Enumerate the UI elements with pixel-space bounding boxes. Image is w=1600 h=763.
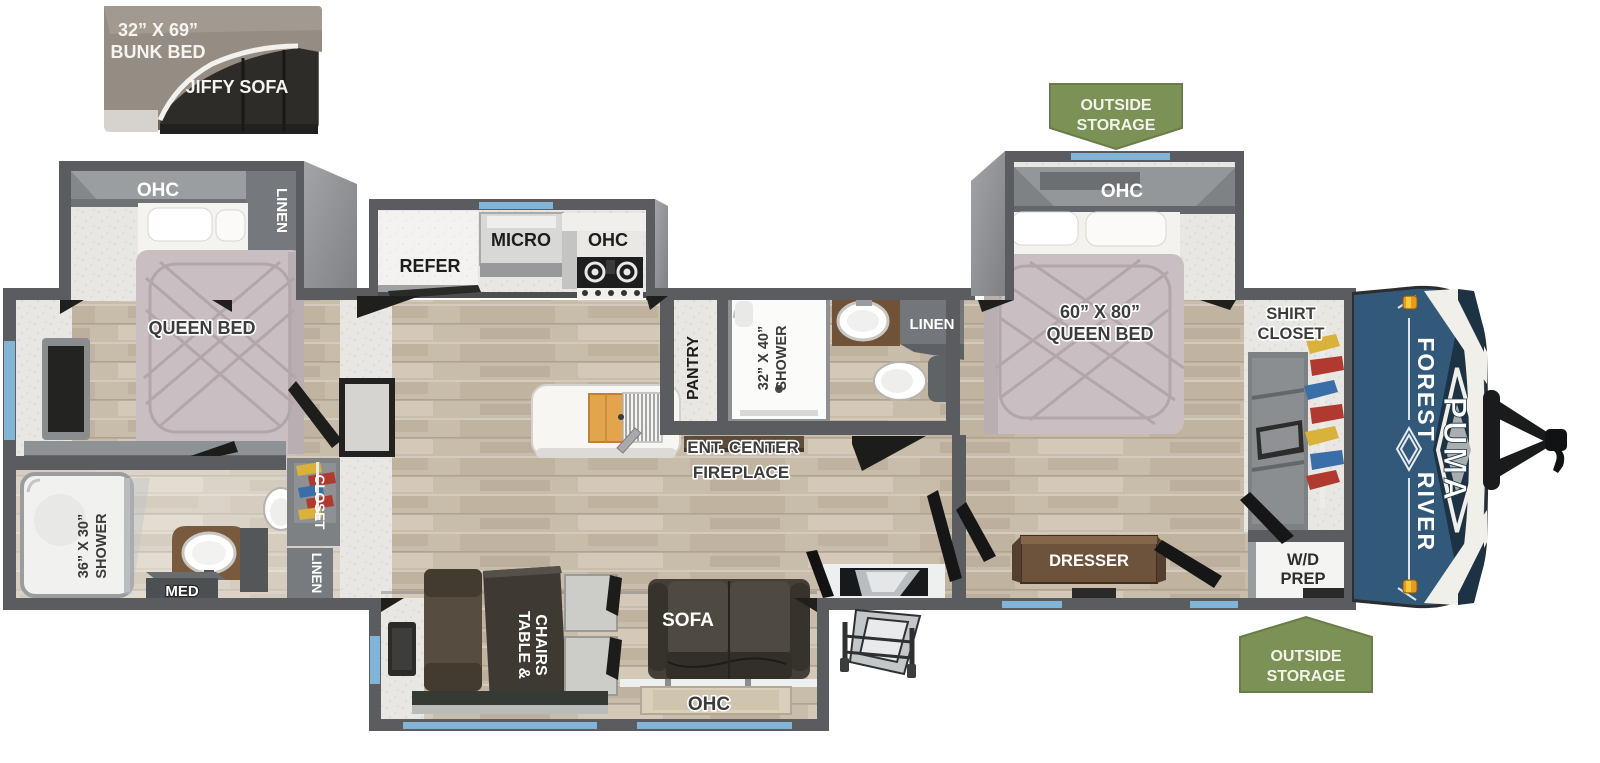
svg-text:OHC: OHC — [1101, 181, 1144, 202]
svg-text:CLOSET: CLOSET — [1258, 325, 1325, 343]
svg-text:REFER: REFER — [399, 256, 460, 276]
svg-text:LINEN: LINEN — [910, 316, 955, 333]
svg-text:CLOSET: CLOSET — [312, 475, 327, 531]
svg-text:32” X 40”: 32” X 40” — [756, 326, 772, 391]
svg-text:ENT. CENTER: ENT. CENTER — [687, 438, 798, 457]
svg-text:60” X 80”: 60” X 80” — [1060, 302, 1140, 322]
svg-text:W/D: W/D — [1287, 551, 1319, 569]
svg-text:SHOWER: SHOWER — [94, 513, 110, 579]
svg-text:MICRO: MICRO — [491, 230, 551, 250]
svg-text:SOFA: SOFA — [662, 610, 714, 631]
svg-text:STORAGE: STORAGE — [1267, 668, 1346, 685]
svg-text:SHIRT: SHIRT — [1266, 305, 1316, 323]
svg-text:TABLE &: TABLE & — [515, 611, 532, 680]
svg-text:PREP: PREP — [1281, 570, 1326, 588]
svg-text:LINEN: LINEN — [273, 188, 290, 233]
svg-text:36” X 30”: 36” X 30” — [76, 514, 92, 579]
svg-text:FIREPLACE: FIREPLACE — [693, 463, 789, 482]
svg-text:SHOWER: SHOWER — [774, 325, 790, 391]
svg-text:OUTSIDE: OUTSIDE — [1270, 648, 1341, 665]
svg-text:FOREST: FOREST — [1413, 337, 1439, 442]
svg-text:OHC: OHC — [588, 230, 628, 250]
svg-text:MED: MED — [165, 583, 199, 600]
svg-text:32” X 69”: 32” X 69” — [118, 20, 198, 40]
svg-text:LINEN: LINEN — [309, 553, 324, 594]
svg-text:QUEEN BED: QUEEN BED — [1046, 324, 1153, 344]
svg-text:JIFFY SOFA: JIFFY SOFA — [186, 77, 289, 97]
svg-text:QUEEN BED: QUEEN BED — [148, 318, 255, 338]
svg-text:OUTSIDE: OUTSIDE — [1080, 97, 1151, 114]
svg-text:STORAGE: STORAGE — [1077, 117, 1156, 134]
svg-text:CHAIRS: CHAIRS — [532, 614, 549, 676]
svg-text:OHC: OHC — [137, 180, 180, 201]
svg-text:PUMA: PUMA — [1437, 397, 1473, 503]
svg-text:RIVER: RIVER — [1413, 472, 1439, 552]
svg-text:OHC: OHC — [688, 694, 731, 715]
svg-text:DRESSER: DRESSER — [1049, 552, 1129, 570]
svg-text:BUNK BED: BUNK BED — [110, 42, 205, 62]
svg-text:PANTRY: PANTRY — [685, 336, 702, 400]
